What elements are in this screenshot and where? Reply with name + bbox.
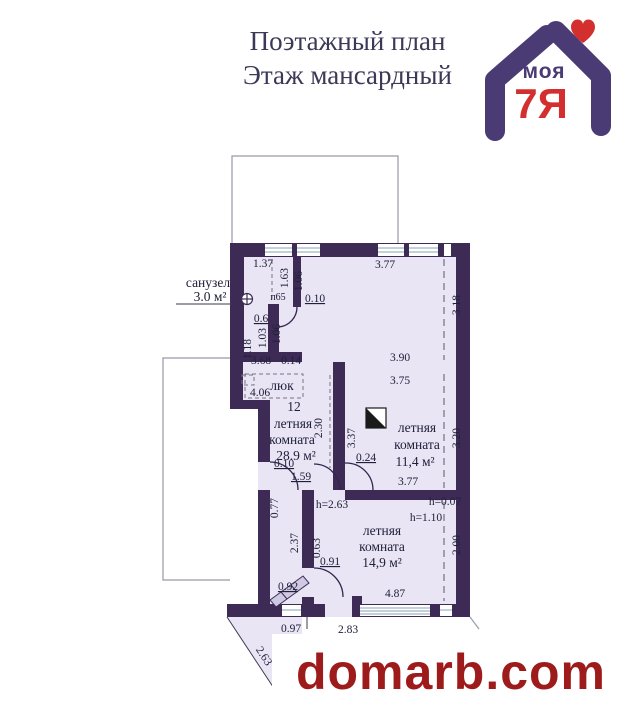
dimension-label: 3.90 bbox=[390, 352, 410, 364]
dimension-label: 0.6 bbox=[254, 313, 269, 325]
room-name: летняя bbox=[274, 416, 312, 431]
dimension-label: 0.63 bbox=[311, 538, 323, 558]
room-area: 11,4 м² bbox=[395, 454, 434, 469]
dimension-label: 0.92 bbox=[278, 581, 298, 593]
dimension-label: 3.77 bbox=[398, 476, 418, 488]
dimension-label: 0.10 bbox=[305, 293, 325, 305]
room-name: санузел bbox=[186, 275, 230, 290]
dimension-label: 0.91 bbox=[320, 556, 340, 568]
dimension-label: 1.63 bbox=[279, 268, 291, 288]
company-logo: моя 7Я bbox=[478, 16, 622, 144]
dimension-label: 4.87 bbox=[385, 588, 405, 600]
dimension-label: 1.37 bbox=[253, 258, 273, 270]
dimension-label: 3.37 bbox=[346, 428, 358, 448]
window bbox=[378, 244, 404, 256]
watermark-text: domarb.com bbox=[296, 643, 606, 701]
dimension-label: 3.20 bbox=[451, 428, 463, 448]
dimension-label: 3.68 bbox=[251, 355, 271, 367]
dimension-label: 0.10 bbox=[274, 458, 294, 470]
dimension-label: h=1.10 bbox=[410, 512, 443, 524]
room-name: летняя bbox=[398, 420, 436, 435]
dimension-label: 1.03 bbox=[257, 328, 269, 348]
room-name: летняя bbox=[363, 523, 401, 538]
dimension-label: 1.59 bbox=[291, 471, 311, 483]
dimension-label: 3.77 bbox=[375, 259, 395, 271]
diagonal-marker-icon bbox=[366, 408, 386, 428]
dimension-label: 3.18 bbox=[451, 295, 463, 315]
ventilation-icon bbox=[242, 294, 253, 305]
dimension-label: 1.06 bbox=[293, 271, 305, 291]
dimension-label: 0.14 bbox=[281, 355, 301, 367]
dimension-label: 0.77 bbox=[269, 498, 281, 518]
corner-tick bbox=[470, 617, 479, 629]
wall-segment bbox=[230, 400, 270, 409]
window bbox=[297, 244, 320, 256]
dimension-label: h=2.63 bbox=[316, 499, 349, 511]
dimension-label: 4.06 bbox=[250, 387, 270, 399]
logo-graphic: моя 7Я bbox=[478, 16, 622, 144]
entrance-gap bbox=[325, 604, 352, 617]
room-name: комната bbox=[394, 437, 440, 452]
room-area: 14,9 м² bbox=[362, 555, 402, 570]
dimension-label: 2.37 bbox=[289, 533, 301, 553]
logo-mark: 7Я bbox=[514, 80, 568, 127]
title-line-1: Поэтажный план bbox=[175, 24, 520, 58]
dimension-label: 2.00 bbox=[451, 535, 463, 555]
wall-segment bbox=[352, 596, 362, 604]
dimension-label: 3.75 bbox=[390, 375, 410, 387]
roof-outline-top bbox=[232, 156, 398, 244]
window bbox=[265, 244, 292, 256]
dimension-label: 0.24 bbox=[356, 452, 376, 464]
wall-segment bbox=[302, 597, 314, 604]
title-line-2: Этаж мансардный bbox=[175, 58, 520, 92]
door-label: п65 bbox=[270, 292, 285, 303]
window bbox=[282, 605, 301, 616]
room-name: комната bbox=[269, 432, 315, 447]
dimension-label: 2.30 bbox=[313, 418, 325, 438]
roof-outline-left bbox=[163, 358, 230, 580]
room-name: комната bbox=[359, 539, 405, 554]
dimension-label: h=0.07 bbox=[429, 496, 462, 508]
window bbox=[360, 605, 430, 616]
dimension-label: 1.06 bbox=[271, 324, 283, 344]
plan-title: Поэтажный план Этаж мансардный bbox=[175, 24, 520, 92]
window bbox=[440, 605, 452, 616]
room-number: 12 bbox=[287, 399, 301, 414]
hatch-label: люк bbox=[270, 378, 294, 393]
wall-segment bbox=[333, 362, 345, 490]
room-area: 3.0 м² bbox=[194, 289, 227, 304]
window bbox=[444, 244, 451, 256]
watermark: domarb.com bbox=[272, 634, 630, 709]
window bbox=[409, 244, 438, 256]
